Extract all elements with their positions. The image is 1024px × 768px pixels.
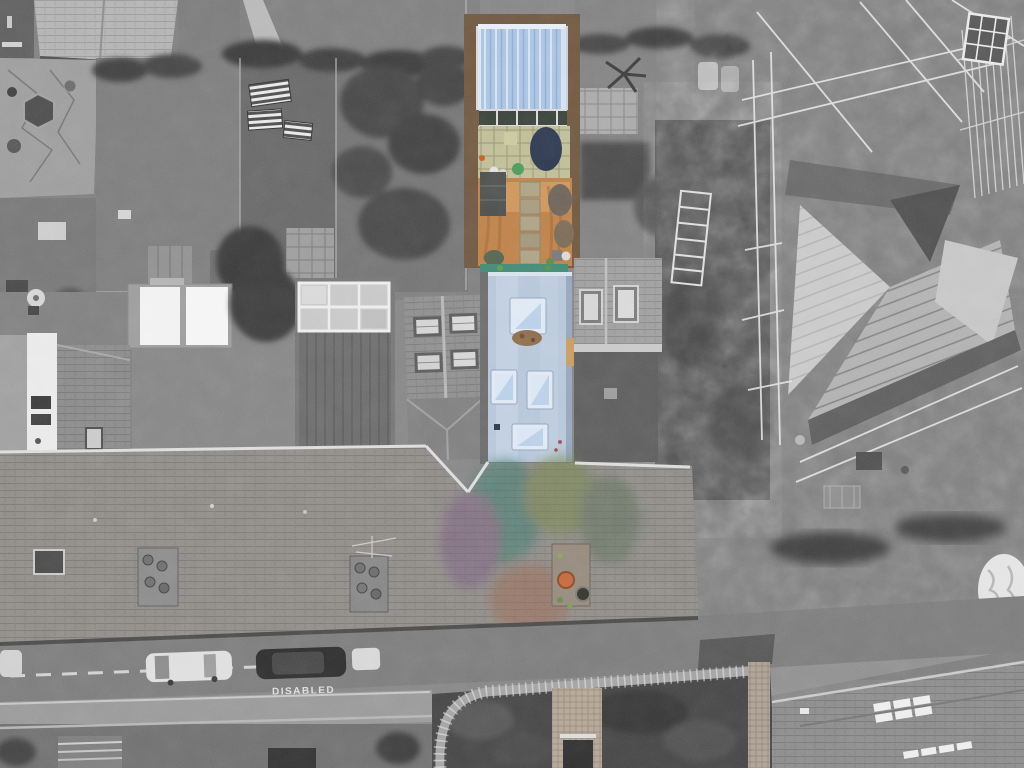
aerial-photo-canvas: DISABLED bbox=[0, 0, 1024, 768]
aerial-photo: DISABLED bbox=[0, 0, 1024, 768]
photo-mottle bbox=[0, 0, 1024, 768]
